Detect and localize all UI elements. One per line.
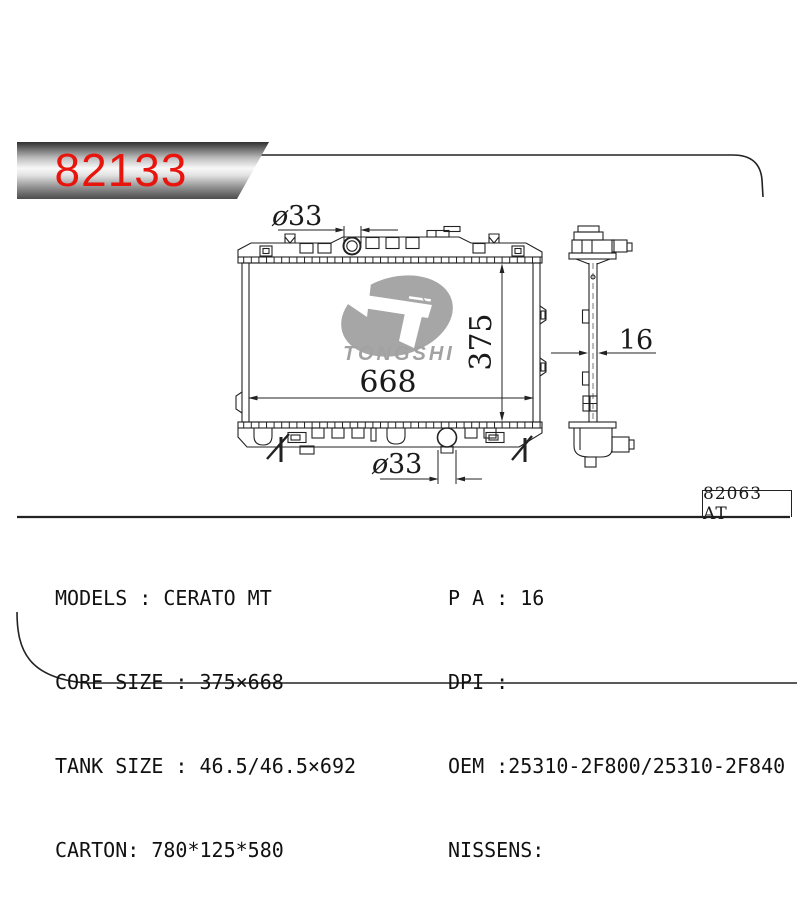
top-header-plate	[238, 257, 542, 263]
bottom-pipe-dia-symbol: ø	[371, 449, 389, 480]
thickness-label: 16	[619, 325, 653, 356]
bottom-header-plate	[238, 422, 542, 428]
part-number-banner: 82133	[17, 142, 269, 199]
drawing-ref-label: 82063 AT	[703, 484, 791, 524]
top-pipe-dia-symbol: ø	[271, 201, 289, 232]
side-top-cap	[569, 226, 632, 264]
top-pipe-dia-value: 33	[288, 201, 322, 232]
core-height-label: 375	[464, 313, 499, 370]
core-width-label: 668	[359, 365, 416, 400]
catalog-page: ø 33 ø 33 668 375 16 R TONGSHI	[0, 0, 800, 800]
spec-list-left: MODELS : CERATO MT CORE SIZE : 375×668 T…	[55, 528, 356, 920]
logo-brand-text: TONGSHI	[343, 343, 455, 365]
registered-mark-letter: R	[426, 292, 432, 301]
spec-list-right: P A : 16 DPI : OEM :25310-2F800/25310-2F…	[448, 528, 785, 920]
tongshi-logo: R TONGSHI	[331, 263, 462, 369]
outlet-pipe	[438, 428, 457, 447]
spec-carton: CARTON: 780*125*580	[55, 836, 356, 864]
drawing-ref-box: 82063 AT	[702, 490, 792, 517]
spec-core-size: CORE SIZE : 375×668	[55, 668, 356, 696]
spec-dpi: DPI :	[448, 668, 785, 696]
filler-neck	[344, 238, 361, 255]
spec-models: MODELS : CERATO MT	[55, 584, 356, 612]
side-bottom-cap	[569, 422, 634, 467]
bottom-pipe-dia-value: 33	[388, 449, 422, 480]
part-number: 82133	[55, 142, 232, 199]
spec-nissens: NISSENS:	[448, 836, 785, 864]
spec-pa: P A : 16	[448, 584, 785, 612]
spec-oem: OEM :25310-2F800/25310-2F840	[448, 752, 785, 780]
spec-tank-size: TANK SIZE : 46.5/46.5×692	[55, 752, 356, 780]
